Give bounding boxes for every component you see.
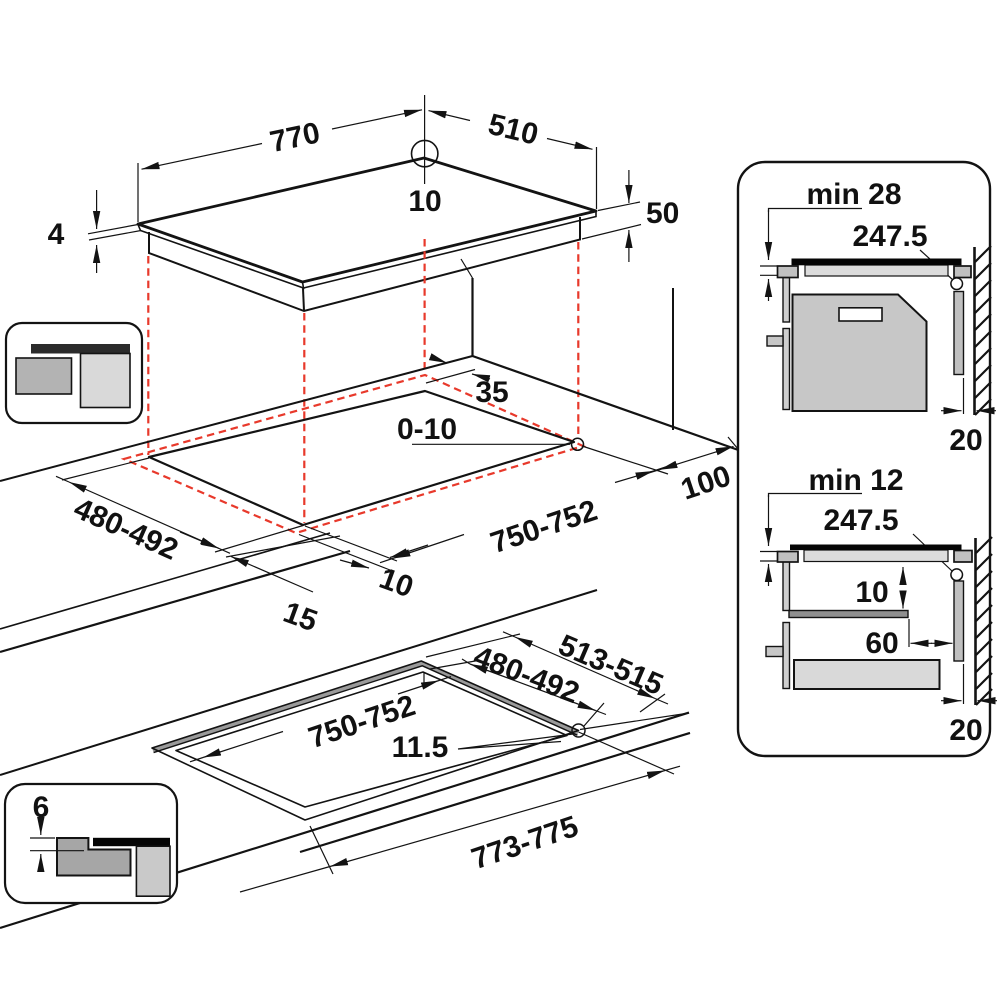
svg-text:35: 35 [475, 376, 508, 409]
svg-text:510: 510 [485, 108, 541, 152]
svg-text:100: 100 [677, 459, 735, 506]
svg-text:11.5: 11.5 [392, 731, 449, 764]
svg-text:15: 15 [279, 596, 322, 638]
svg-text:10: 10 [855, 576, 888, 609]
svg-text:min 28: min 28 [806, 178, 901, 211]
svg-text:247.5: 247.5 [823, 504, 898, 537]
svg-text:10: 10 [375, 562, 418, 604]
svg-text:247.5: 247.5 [852, 220, 927, 253]
svg-text:770: 770 [267, 116, 323, 159]
svg-text:480-492: 480-492 [69, 492, 183, 567]
svg-text:60: 60 [865, 627, 898, 660]
svg-text:10: 10 [408, 185, 441, 218]
svg-text:20: 20 [949, 714, 982, 747]
svg-text:50: 50 [646, 197, 679, 230]
svg-text:773-775: 773-775 [468, 810, 583, 876]
svg-text:6: 6 [33, 791, 50, 824]
svg-text:750-752: 750-752 [487, 494, 602, 560]
svg-text:4: 4 [48, 218, 65, 251]
svg-text:0-10: 0-10 [397, 413, 457, 446]
svg-text:min 12: min 12 [808, 464, 903, 497]
svg-text:20: 20 [949, 424, 982, 457]
